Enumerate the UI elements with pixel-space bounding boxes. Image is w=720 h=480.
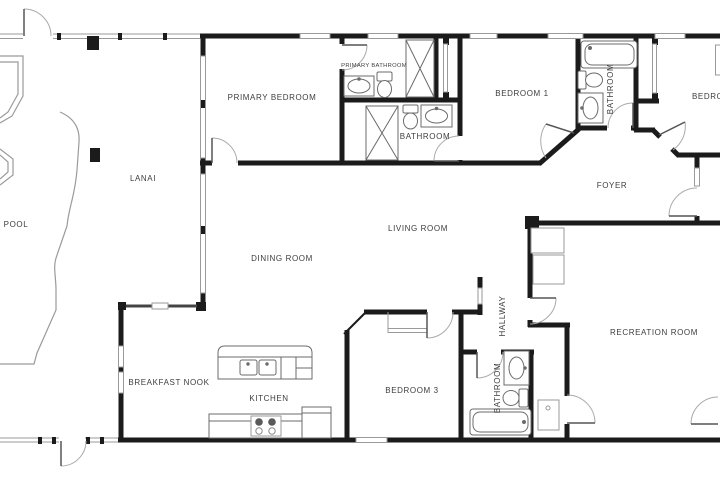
screen-post bbox=[118, 33, 122, 40]
toilet-bowl bbox=[404, 113, 418, 129]
faucet-dot bbox=[589, 47, 592, 50]
room-label-guest-bathroom: BATHROOM bbox=[493, 363, 502, 413]
window bbox=[716, 45, 720, 75]
sink-basin bbox=[426, 109, 448, 123]
cabinet bbox=[533, 255, 564, 284]
window bbox=[300, 34, 330, 39]
room-label-hallway: HALLWAY bbox=[498, 295, 507, 336]
toilet-tank bbox=[403, 105, 418, 113]
bathtub-inner bbox=[473, 412, 528, 432]
faucet-dot bbox=[247, 363, 249, 365]
utility-dot bbox=[546, 406, 550, 410]
toilet-tank bbox=[519, 389, 528, 407]
sink-basin bbox=[583, 97, 598, 119]
room-label-bathroom-2: BATHROOM bbox=[400, 132, 450, 141]
stove-burner bbox=[268, 418, 276, 426]
door-swing-arc bbox=[567, 395, 595, 423]
kitchen-fixtures bbox=[209, 346, 331, 438]
toilet-tank bbox=[578, 71, 586, 89]
room-labels: POOL LANAI PRIMARY BEDROOM PRIMARY BATHR… bbox=[4, 63, 720, 413]
door-swing-arc bbox=[669, 188, 697, 216]
stove-burner bbox=[256, 428, 262, 434]
window bbox=[152, 303, 168, 309]
island-sink bbox=[240, 360, 257, 375]
recreation-room-fixtures bbox=[531, 228, 564, 430]
lanai-post bbox=[90, 148, 100, 162]
faucet-dot bbox=[266, 363, 268, 365]
screen-post bbox=[52, 437, 56, 444]
stove-burner bbox=[269, 428, 275, 434]
screen-post bbox=[100, 437, 104, 444]
room-label-primary-bedroom: PRIMARY BEDROOM bbox=[228, 93, 317, 102]
island-sink bbox=[259, 360, 276, 375]
sink-basin bbox=[509, 357, 524, 379]
room-label-pool: POOL bbox=[4, 220, 29, 229]
screen-post bbox=[163, 33, 167, 40]
door-swing-arc bbox=[427, 312, 453, 338]
closet-front bbox=[388, 329, 427, 333]
screen-post bbox=[57, 33, 61, 40]
stove bbox=[251, 416, 281, 436]
room-label-bedroom-3: BEDROOM 3 bbox=[385, 386, 438, 395]
screen-door-gap bbox=[23, 32, 53, 41]
toilet-bowl bbox=[503, 391, 519, 406]
pool-deck-edge bbox=[0, 112, 79, 364]
pool-step-outer bbox=[0, 149, 13, 185]
door-swing-arc bbox=[691, 397, 718, 424]
glass-wall-mullion bbox=[201, 226, 205, 234]
cased-opening bbox=[478, 288, 482, 304]
toilet-bowl bbox=[586, 73, 603, 87]
screen-post bbox=[38, 437, 42, 444]
door-leaf bbox=[546, 124, 574, 133]
door-swing-arc bbox=[24, 9, 51, 36]
faucet-dot bbox=[581, 107, 584, 110]
faucet-dot bbox=[524, 367, 527, 370]
room-label-bedroom-1: BEDROOM 1 bbox=[495, 89, 548, 98]
window bbox=[119, 372, 124, 393]
door-swing-arc bbox=[212, 138, 237, 163]
stove-burner bbox=[255, 418, 263, 426]
screen-door-gap bbox=[59, 436, 85, 445]
door-swing-arc bbox=[673, 122, 685, 150]
pool-outline bbox=[0, 56, 23, 185]
pool-edge-outer bbox=[0, 56, 23, 123]
window bbox=[655, 34, 685, 39]
screen-post bbox=[86, 437, 90, 444]
window bbox=[548, 34, 583, 39]
glass-wall-mullion bbox=[201, 100, 205, 108]
room-label-primary-bathroom: PRIMARY BATHROOM bbox=[341, 63, 407, 69]
lanai-post bbox=[87, 36, 99, 50]
entry-sidelite bbox=[695, 168, 700, 186]
floor-plan-drawing: POOL LANAI PRIMARY BEDROOM PRIMARY BATHR… bbox=[0, 0, 720, 480]
toilet-bowl bbox=[378, 81, 392, 98]
door-swing-arc bbox=[530, 298, 556, 324]
cabinet bbox=[531, 228, 564, 253]
room-label-kitchen: KITCHEN bbox=[249, 394, 288, 403]
room-label-lanai: LANAI bbox=[130, 174, 156, 183]
faucet-dot bbox=[435, 107, 438, 110]
faucet-dot bbox=[358, 78, 361, 81]
sink-basin bbox=[348, 79, 370, 93]
window bbox=[368, 34, 398, 39]
bedroom3-corner-diagonal bbox=[344, 312, 366, 334]
window bbox=[470, 34, 497, 39]
refrigerator bbox=[302, 407, 331, 438]
window bbox=[356, 438, 387, 443]
closet-sliding-door bbox=[444, 44, 448, 92]
window bbox=[119, 346, 124, 367]
utility-closet bbox=[538, 400, 559, 430]
room-label-living-room: LIVING ROOM bbox=[388, 224, 448, 233]
closet-sliding-door bbox=[653, 44, 657, 93]
room-label-hall-bathroom: BATHROOM bbox=[606, 64, 615, 114]
door-swing-arc bbox=[541, 124, 546, 158]
pool-step-inner bbox=[0, 155, 8, 179]
toilet-tank bbox=[377, 72, 392, 81]
door-leaf bbox=[659, 122, 685, 135]
bathtub-inner bbox=[585, 44, 634, 65]
faucet-dot bbox=[523, 421, 526, 424]
room-label-recreation-room: RECREATION ROOM bbox=[610, 328, 698, 337]
room-label-breakfast-nook: BREAKFAST NOOK bbox=[128, 378, 209, 387]
room-label-foyer: FOYER bbox=[597, 181, 628, 190]
room-label-bedroom-2: BEDROOM bbox=[692, 92, 720, 101]
room-label-dining-room: DINING ROOM bbox=[251, 254, 313, 263]
floor-plan: POOL LANAI PRIMARY BEDROOM PRIMARY BATHR… bbox=[0, 0, 720, 480]
